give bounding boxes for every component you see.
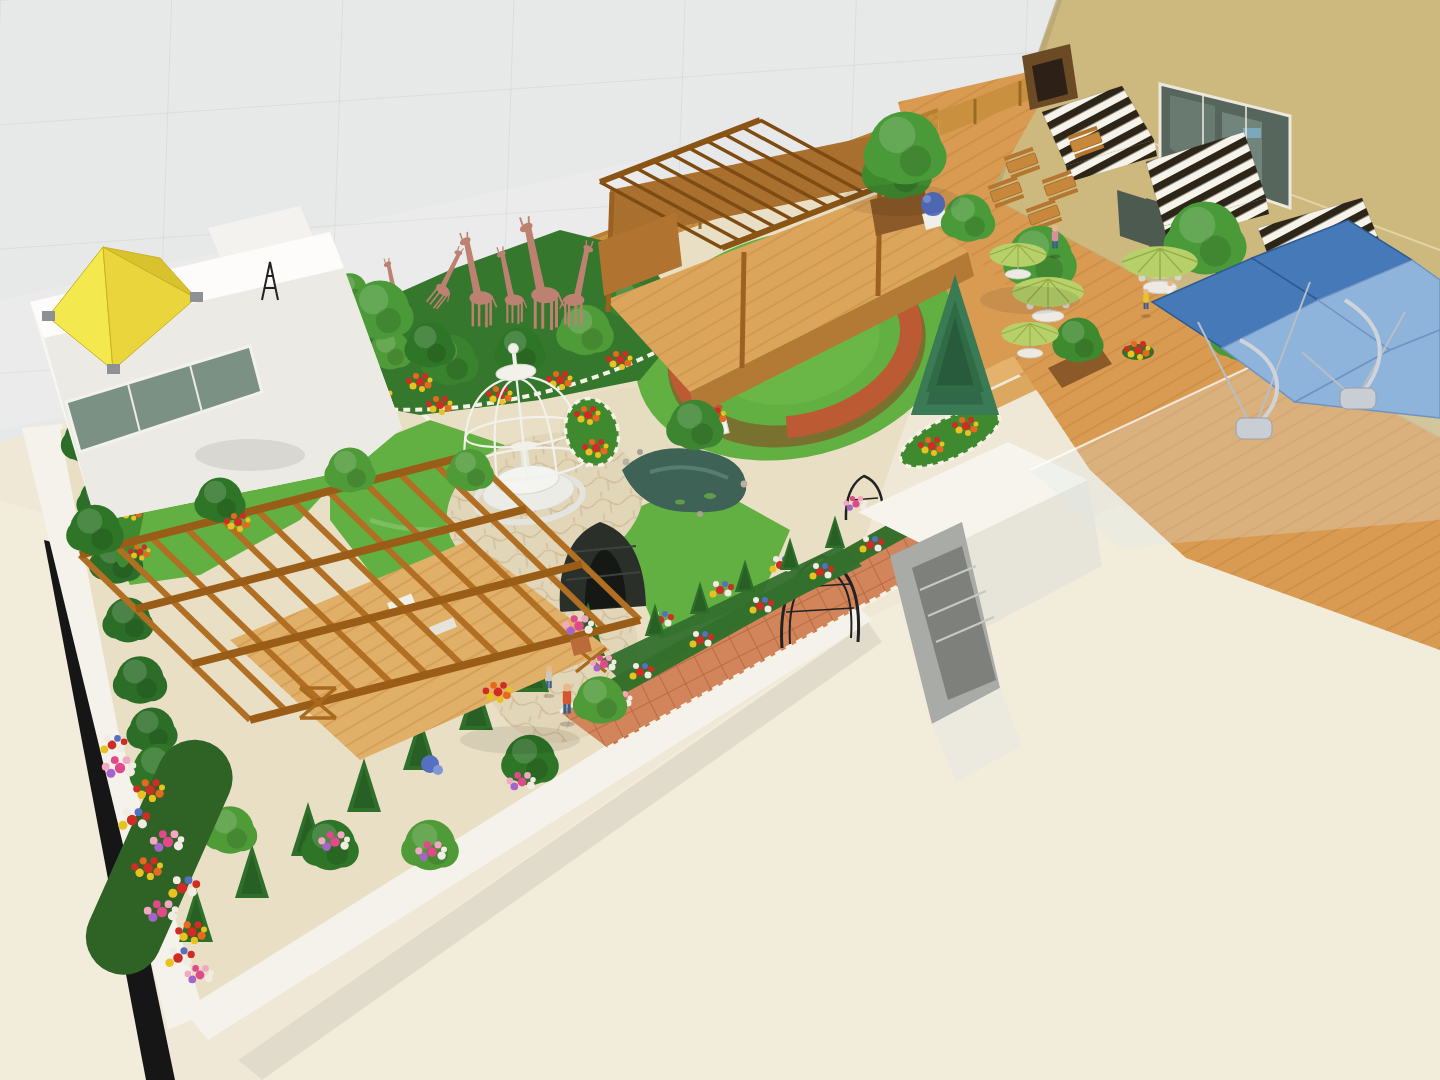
- rooftop-garden-rendering: [0, 0, 1440, 1080]
- corner-kiosk: [1022, 44, 1078, 110]
